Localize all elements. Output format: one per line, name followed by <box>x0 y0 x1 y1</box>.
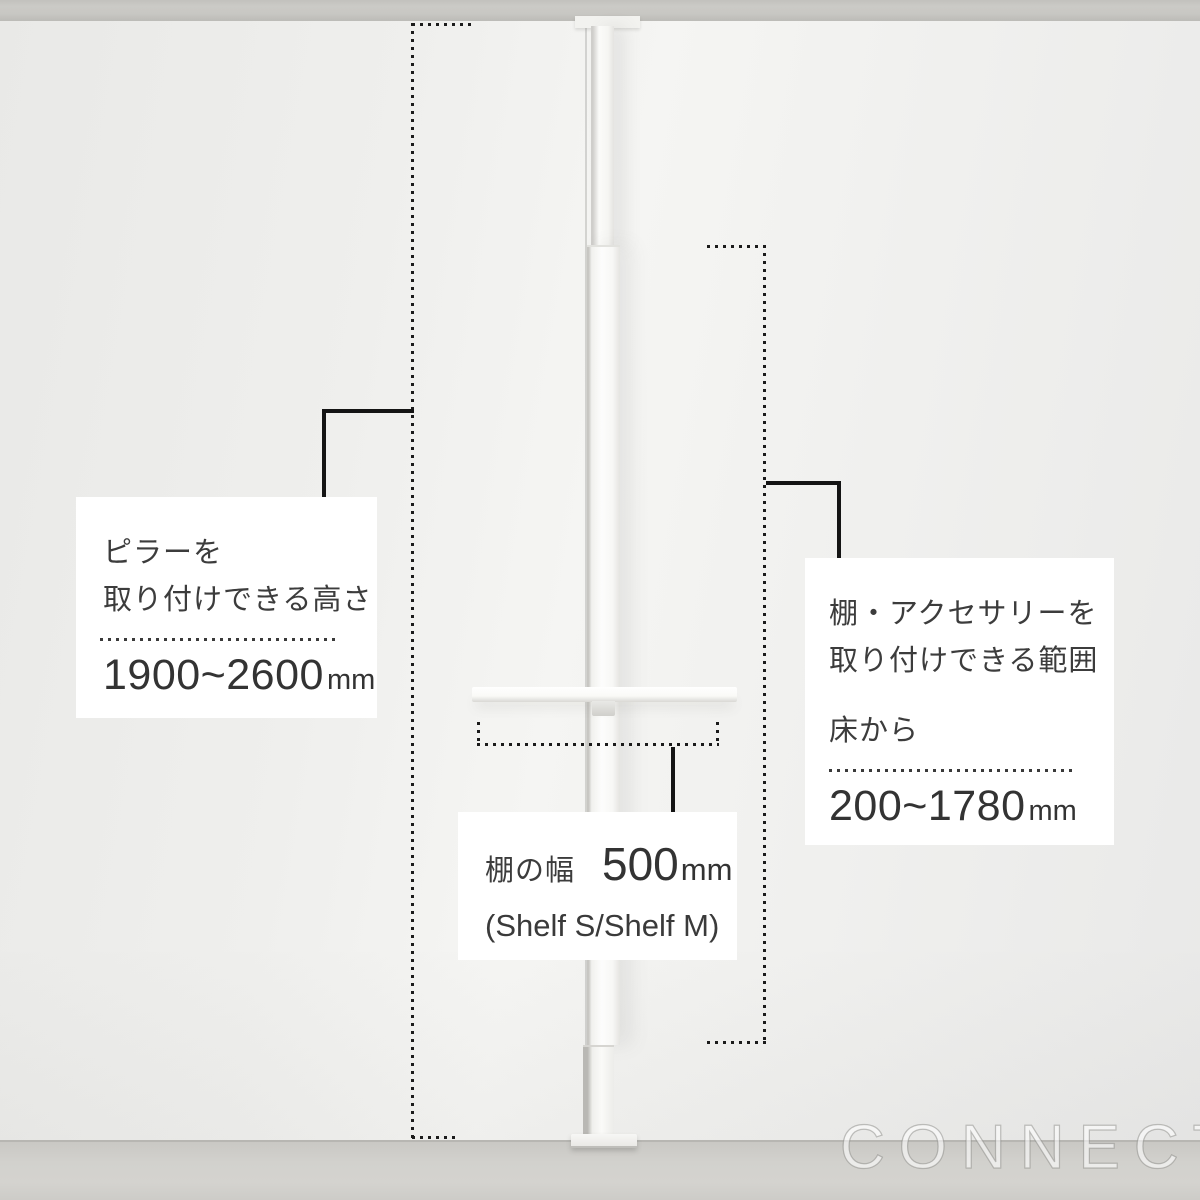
measure-mount-range-line <box>763 245 766 1044</box>
shelf-width-value: 500 <box>602 837 679 891</box>
connector-mount-range-horizontal <box>766 481 841 485</box>
annotation-mount-range: 棚・アクセサリーを 取り付けできる範囲 床から 200~1780 mm <box>805 558 1114 845</box>
pillar-height-value: 1900~2600 <box>103 651 324 700</box>
measure-shelf-width-line <box>477 743 719 746</box>
connector-pillar-height-horizontal <box>322 409 414 413</box>
mount-range-unit: mm <box>1029 795 1077 828</box>
mount-range-title-line2: 取り付けできる範囲 <box>829 638 1114 685</box>
mount-range-subtitle: 床から <box>829 708 1114 755</box>
measure-pillar-height-line <box>411 23 414 1138</box>
watermark-text: CONNECT <box>840 1112 1200 1183</box>
mount-range-value-row: 200~1780 mm <box>829 782 1114 831</box>
pole-floor-base-plate <box>571 1134 637 1148</box>
mount-range-value: 200~1780 <box>829 782 1026 831</box>
pillar-height-separator <box>100 638 340 641</box>
measure-pillar-height-top-tick <box>412 23 474 26</box>
shelf <box>472 687 737 702</box>
pillar-height-title-line2: 取り付けできる高さ <box>103 577 377 624</box>
connector-pillar-height-vertical <box>322 409 326 498</box>
annotation-shelf-width: 棚の幅 500 mm (Shelf S/Shelf M) <box>458 812 737 960</box>
measure-mount-range-bottom-tick <box>707 1041 768 1044</box>
shelf-width-unit: mm <box>681 852 733 888</box>
mount-range-title-line1: 棚・アクセサリーを <box>829 591 1114 638</box>
measure-pillar-height-bottom-tick <box>412 1136 460 1139</box>
pole-upper-section <box>591 26 614 248</box>
shelf-mount-bracket <box>592 701 615 716</box>
measure-mount-range-top-tick <box>707 245 768 248</box>
product-dimension-diagram: ピラーを 取り付けできる高さ 1900~2600 mm 棚・アクセサリーを 取り… <box>0 0 1200 1200</box>
connector-mount-range-vertical <box>837 481 841 559</box>
connector-shelf-width-vertical <box>671 747 675 813</box>
pillar-height-value-row: 1900~2600 mm <box>103 651 377 700</box>
shelf-width-value-row: 棚の幅 500 mm <box>485 837 737 891</box>
pole-lower-section <box>583 1045 614 1140</box>
pillar-height-unit: mm <box>327 664 375 697</box>
shelf-width-note: (Shelf S/Shelf M) <box>485 908 737 944</box>
pillar-height-title-line1: ピラーを <box>103 530 377 577</box>
mount-range-separator <box>829 769 1073 772</box>
annotation-pillar-height: ピラーを 取り付けできる高さ 1900~2600 mm <box>76 497 377 718</box>
shelf-width-title: 棚の幅 <box>485 847 575 889</box>
